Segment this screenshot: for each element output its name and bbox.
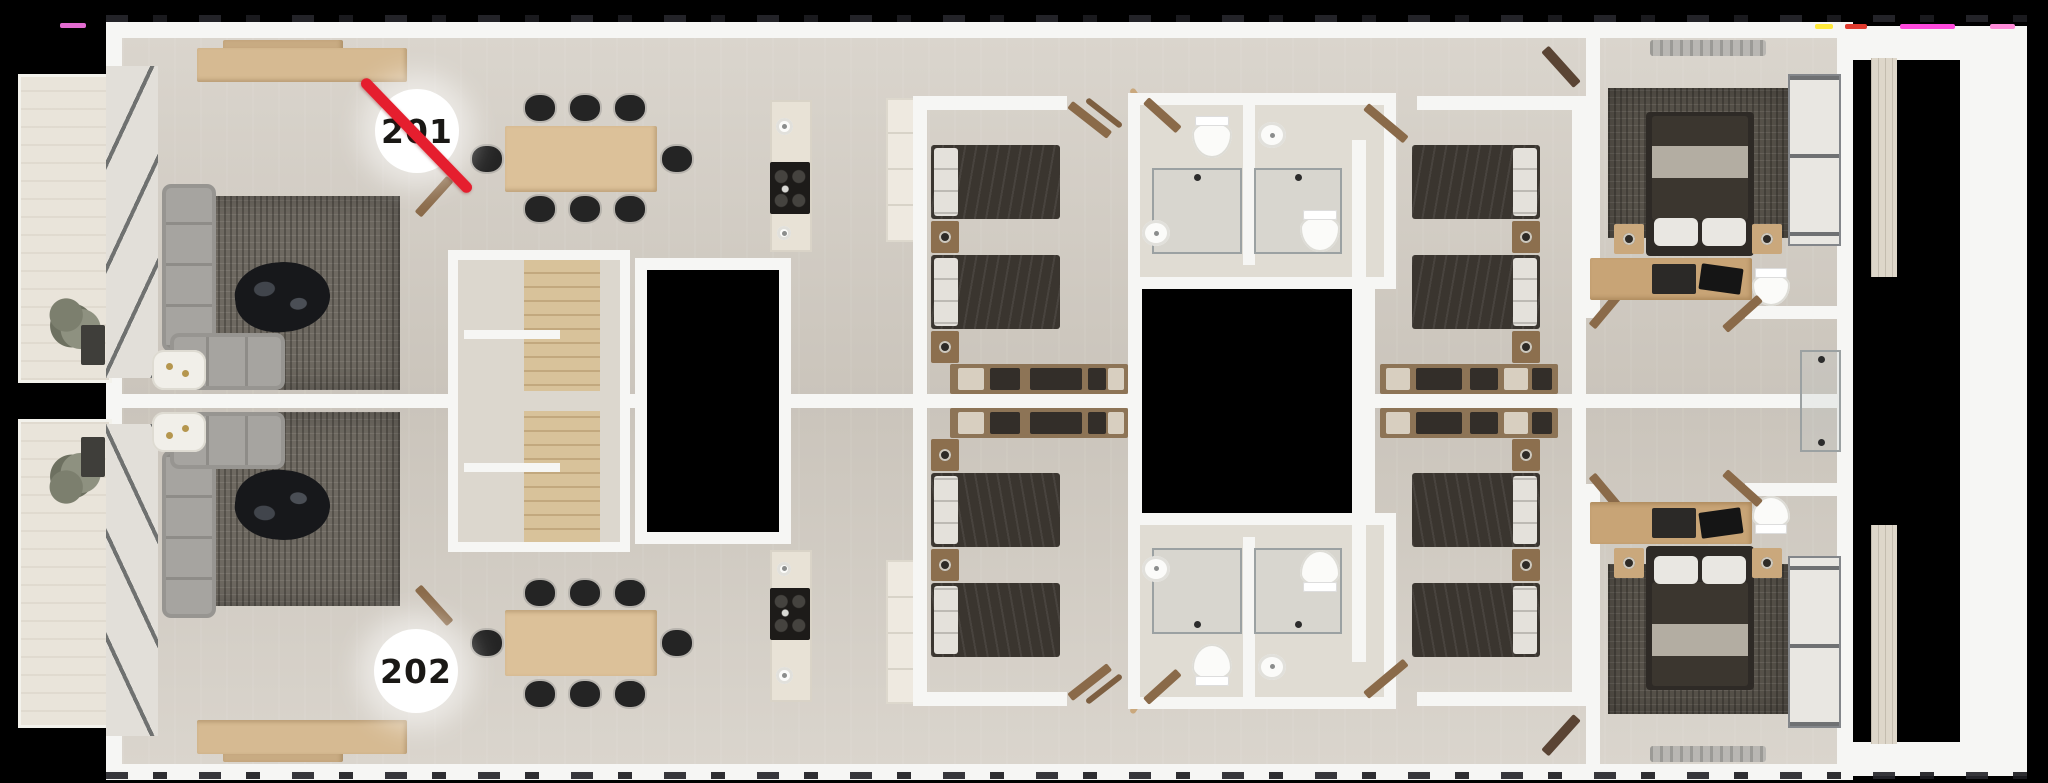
dining-chair — [525, 196, 555, 222]
dining-chair — [570, 580, 600, 606]
dining-table — [505, 126, 657, 192]
ensuite-wall — [1745, 483, 1837, 496]
sliding-glass-doors — [106, 424, 158, 736]
dresser — [1380, 364, 1558, 394]
bedroom-wall — [913, 692, 1067, 706]
sofa — [162, 450, 216, 618]
dining-chair — [615, 681, 645, 707]
dining-chair — [570, 681, 600, 707]
bed — [1412, 473, 1540, 547]
dresser — [1380, 408, 1558, 438]
outer-wall-top — [106, 22, 1853, 38]
noise-tick — [60, 23, 86, 28]
kitchen-faucet — [777, 226, 791, 240]
staircase — [448, 250, 630, 401]
bedroom-wall — [1352, 401, 1366, 662]
master-bed — [1646, 546, 1754, 690]
staircase — [448, 401, 630, 552]
bedroom-wall — [913, 401, 927, 706]
unit-201-area — [0, 22, 2048, 401]
dining-table — [505, 610, 657, 676]
side-table — [152, 350, 206, 390]
light-well — [635, 401, 791, 544]
stove — [770, 588, 810, 640]
dining-chair — [570, 95, 600, 121]
unit-202-area — [0, 401, 2048, 780]
nightstand — [1614, 548, 1644, 578]
nightstand — [1752, 224, 1782, 254]
stair-rail — [464, 463, 560, 472]
outer-railing-right — [1960, 26, 2027, 401]
nightstand — [1512, 221, 1540, 253]
duvet — [1652, 582, 1748, 686]
duvet — [1652, 116, 1748, 220]
ensuite-wall — [1745, 306, 1837, 319]
ac-vent — [1650, 40, 1766, 56]
balcony-mat — [81, 437, 105, 477]
kitchen-sink — [776, 667, 793, 684]
sofa — [162, 184, 216, 352]
left-balcony — [18, 74, 112, 383]
nightstand — [1512, 549, 1540, 581]
kitchen-cabinet — [886, 98, 916, 242]
shower — [1800, 401, 1841, 452]
bedroom-wall — [1572, 96, 1586, 401]
bedroom-wall — [1572, 401, 1586, 706]
bed — [931, 255, 1060, 329]
bedroom-wall — [1417, 692, 1586, 706]
kitchen-cabinet — [886, 560, 916, 704]
nightstand — [931, 221, 959, 253]
right-balcony-floor — [1871, 525, 1897, 744]
noise-tick — [1815, 24, 1833, 29]
nightstand — [931, 439, 959, 471]
nightstand — [1512, 331, 1540, 363]
left-balcony — [18, 419, 112, 728]
dining-chair — [472, 146, 502, 172]
bed — [1412, 583, 1540, 657]
bed — [1412, 255, 1540, 329]
dining-chair — [615, 580, 645, 606]
master-bed — [1646, 112, 1754, 256]
dresser — [950, 364, 1128, 394]
sliding-glass-doors — [106, 66, 158, 378]
nightstand — [931, 549, 959, 581]
render-noise-bottom — [106, 772, 2030, 779]
bedroom-wall — [913, 96, 927, 401]
noise-tick — [1845, 24, 1867, 29]
desk-chair — [1652, 508, 1696, 538]
window — [1788, 74, 1841, 246]
pillow — [1702, 556, 1746, 584]
render-noise-top — [106, 15, 2030, 22]
unit-badge-202[interactable]: 202 — [374, 629, 458, 713]
bedroom-wall — [1417, 96, 1586, 110]
noise-tick — [1990, 24, 2015, 29]
shower — [1800, 350, 1841, 401]
unit-badge-202-label: 202 — [380, 652, 452, 691]
bedroom-wall — [913, 96, 1067, 110]
desk-chair — [1652, 264, 1696, 294]
dining-chair — [525, 681, 555, 707]
kitchen-sink — [776, 118, 793, 135]
stair-rail — [464, 330, 560, 339]
sideboard — [197, 720, 407, 754]
ac-vent — [1650, 746, 1766, 762]
bathroom-sink — [1258, 654, 1286, 680]
stair-treads — [524, 260, 600, 391]
side-table — [152, 412, 206, 452]
bedroom-wall — [1352, 140, 1366, 401]
dining-chair — [615, 95, 645, 121]
bathroom-sink — [1142, 556, 1170, 582]
pillow — [1654, 556, 1698, 584]
outer-railing-right — [1960, 401, 2027, 776]
nightstand — [1614, 224, 1644, 254]
stove — [770, 162, 810, 214]
bed — [1412, 145, 1540, 219]
balcony-mat — [81, 325, 105, 365]
kitchen-faucet — [777, 562, 791, 576]
dining-chair — [472, 630, 502, 656]
bed — [931, 145, 1060, 219]
window — [1788, 556, 1841, 728]
bed — [931, 583, 1060, 657]
pillow — [1702, 218, 1746, 246]
dining-chair — [525, 95, 555, 121]
dining-chair — [525, 580, 555, 606]
bed — [931, 473, 1060, 547]
nightstand — [1512, 439, 1540, 471]
light-well — [635, 258, 791, 401]
dresser — [950, 408, 1128, 438]
dining-chair — [615, 196, 645, 222]
dining-chair — [570, 196, 600, 222]
sideboard — [197, 48, 407, 82]
noise-tick — [1900, 24, 1955, 29]
nightstand — [1752, 548, 1782, 578]
stair-treads — [524, 411, 600, 542]
bathroom-sink — [1142, 220, 1170, 246]
nightstand — [931, 331, 959, 363]
floorplan-canvas: { "canvas": {"width": 2048, "height": 78… — [0, 0, 2048, 783]
bathroom-sink — [1258, 122, 1286, 148]
pillow — [1654, 218, 1698, 246]
dining-chair — [662, 630, 692, 656]
dining-chair — [662, 146, 692, 172]
right-balcony-floor — [1871, 58, 1897, 277]
